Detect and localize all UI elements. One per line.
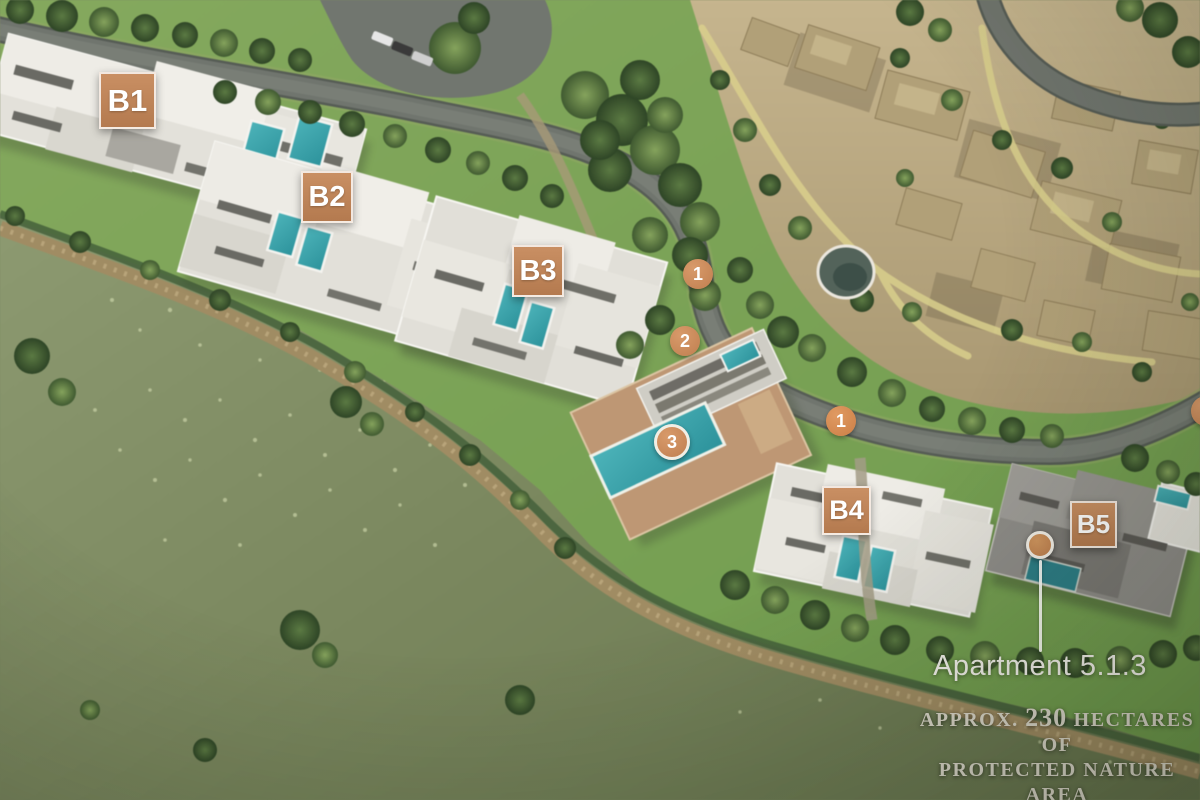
caption-line-2: PROTECTED NATURE AREA — [907, 758, 1200, 800]
masterplan-aerial-view: B1 B2 B3 B4 B5 1 2 3 1 Apartment 5.1.3 A… — [0, 0, 1200, 800]
route-marker-2[interactable]: 2 — [670, 326, 700, 356]
nature-area-caption: APPROX. 230 HECTARES OF PROTECTED NATURE… — [907, 705, 1200, 800]
caption-prefix: APPROX. — [920, 709, 1019, 731]
building-label-b1[interactable]: B1 — [99, 72, 156, 129]
caption-line-1: APPROX. 230 HECTARES OF — [907, 705, 1200, 758]
apartment-leader-line — [1039, 560, 1042, 652]
apartment-pin[interactable] — [1026, 531, 1054, 559]
caption-number: 230 — [1025, 703, 1067, 732]
building-label-b5[interactable]: B5 — [1070, 501, 1117, 548]
apartment-annotation: Apartment 5.1.3 — [930, 650, 1150, 683]
building-label-b3[interactable]: B3 — [512, 245, 564, 297]
building-label-b2[interactable]: B2 — [301, 171, 353, 223]
building-label-b4[interactable]: B4 — [822, 486, 871, 535]
route-marker-3[interactable]: 3 — [654, 424, 690, 460]
route-marker-1b[interactable]: 1 — [826, 406, 856, 436]
route-marker-1[interactable]: 1 — [683, 259, 713, 289]
